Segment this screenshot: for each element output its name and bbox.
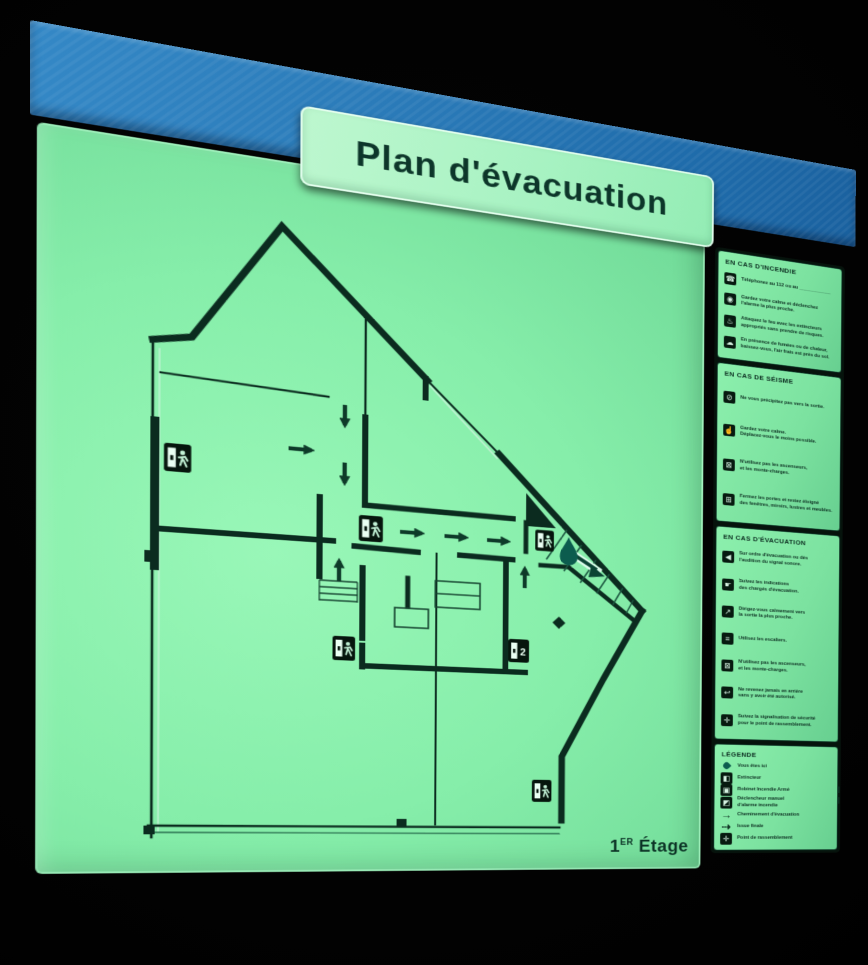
- exit-sign-icon: [532, 780, 552, 802]
- alarm-icon: ◉: [724, 293, 736, 307]
- exit-sign-icon: [332, 636, 355, 661]
- instruction-text: N'utilisez pas les ascenseurs,et les mon…: [738, 659, 805, 675]
- instruction-item: ⊠N'utilisez pas les ascenseurs,et les mo…: [721, 659, 832, 677]
- edge-marks: [837, 787, 840, 804]
- extinguisher-icon: ♨: [724, 314, 736, 327]
- exit-sign-icon: [359, 515, 383, 543]
- direction-icon: ↗: [722, 606, 734, 618]
- instruction-item: ✛Suivez la signalisation de sécuritépour…: [721, 714, 832, 730]
- section-title: LÉGENDE: [722, 751, 832, 761]
- middle-room-south-wall: [362, 666, 525, 673]
- assembly-icon: ✛: [721, 714, 733, 726]
- assembly-point-icon: ✛: [720, 833, 732, 845]
- south-wall-inner-line: [148, 832, 560, 833]
- instruction-item: ↩Ne revenez jamais en arrièresans y avoi…: [721, 686, 832, 703]
- southeast-wall: [561, 606, 642, 821]
- instruction-line: Vous êtes ici: [738, 764, 767, 771]
- instruction-text: Robinet Incendie Armé: [737, 787, 789, 794]
- assembly-point-marker: [552, 616, 565, 629]
- calm-icon: ☝: [723, 424, 735, 437]
- photo-scene: Plan d'évacuation: [0, 0, 868, 965]
- instruction-line: Téléphonez au 112 ou au ____________: [741, 277, 830, 297]
- sidebar-section-seisme: EN CAS DE SÉISME⊘Ne vous précipitez pas …: [716, 362, 842, 532]
- instruction-text: Utilisez les escaliers.: [739, 636, 787, 645]
- sidebar-section-incendie: EN CAS D'INCENDIE☎Téléphonez au 112 ou a…: [717, 250, 842, 374]
- instruction-text: Gardez votre calme et déclenchezl'alarme…: [741, 294, 818, 318]
- left-room-south-wall: [155, 528, 333, 541]
- no-return-icon: ↩: [721, 687, 733, 699]
- floor-number: 1: [610, 837, 621, 856]
- instruction-item: ✛Point de rassemblement: [720, 833, 831, 845]
- instruction-line: Point de rassemblement: [737, 836, 793, 843]
- instruction-text: Attaquez le feu avec les extincteursappr…: [741, 316, 824, 340]
- instruction-item: ⊠N'utilisez pas les ascenseurs,et les mo…: [723, 458, 834, 482]
- smoke-icon: ☁: [724, 336, 736, 349]
- door-marker: [144, 550, 154, 562]
- instruction-text: Point de rassemblement: [737, 836, 793, 843]
- partition-thin: [161, 372, 329, 396]
- floor-plan-panel: 2: [35, 122, 705, 874]
- alarm-trigger-icon: ◩: [720, 797, 732, 809]
- stair-outer-wall: [498, 454, 643, 611]
- evacuation-arrows: [288, 399, 526, 592]
- thin-slope-wall: [427, 381, 499, 454]
- instruction-text: Cheminement d'évacuation: [737, 812, 799, 819]
- instruction-text: Téléphonez au 112 ou au ____________: [741, 277, 830, 297]
- evacuation-sign: Plan d'évacuation: [28, 20, 856, 880]
- south-wall: [148, 826, 560, 828]
- instruction-line: pour le point de rassemblement.: [738, 721, 815, 730]
- instruction-line: Robinet Incendie Armé: [737, 787, 789, 794]
- stairs-icon: ≡: [722, 633, 734, 645]
- stairs-diagonal: [546, 528, 634, 613]
- instruction-item: ≡Utilisez les escaliers.: [722, 633, 833, 650]
- corridor-north-wall: [365, 505, 513, 519]
- door-marker: [143, 826, 154, 835]
- floor-plan: 2: [131, 193, 662, 857]
- no-elevator-icon: ⊠: [721, 659, 733, 671]
- arrow-right: [289, 448, 312, 450]
- instruction-line: Utilisez les escaliers.: [739, 636, 787, 645]
- instruction-text: Suivez la signalisation de sécuritépour …: [738, 714, 816, 729]
- instruction-text: Vous êtes ici: [738, 764, 767, 771]
- corridor-south-wall-a: [355, 546, 418, 552]
- instruction-item: ◩Déclencheur manueld'alarme incendie: [720, 796, 831, 810]
- instruction-text: Issue finale: [737, 824, 763, 831]
- instruction-item: ⊘Ne vous précipitez pas vers la sortie.: [723, 390, 834, 415]
- door-marker: [397, 819, 407, 827]
- instruction-text: Sur ordre d'évacuation ou dèsl'audition …: [739, 551, 808, 569]
- exit-sign-icon: [164, 443, 191, 473]
- no-elevator-icon: ⊠: [723, 458, 735, 471]
- middle-room-east-wall: [505, 563, 506, 671]
- floor-label: 1ER Étage: [610, 837, 689, 857]
- floor-word: Étage: [639, 837, 689, 856]
- exit-sign-b2-icon: [508, 639, 529, 663]
- instruction-line: Issue finale: [737, 824, 763, 831]
- exit-signs: [163, 443, 554, 802]
- arrow-right: [445, 536, 466, 538]
- slope-glow-line: [430, 386, 497, 458]
- you-are-here-icon: [721, 761, 733, 773]
- sidebar-section-legende: LÉGENDEVous êtes ici◧Extincteur▣Robinet …: [713, 744, 838, 851]
- instruction-item: ↗Dirigez-vous calmement versla sortie la…: [722, 605, 833, 625]
- instruction-text: N'utilisez pas les ascenseurs,et les mon…: [740, 459, 808, 479]
- no-run-icon: ⊘: [723, 390, 735, 403]
- instruction-text: En présence de fumées ou de chaleur,bais…: [741, 337, 830, 362]
- instruction-item: →Cheminement d'évacuation: [720, 809, 831, 821]
- instruction-item: ☛Suivez les indicationsdes chargés d'éva…: [722, 578, 833, 598]
- instruction-item: ☝Gardez votre calme.Déplacez-vous le moi…: [723, 423, 834, 448]
- instruction-text: Suivez les indicationsdes chargés d'évac…: [739, 579, 799, 596]
- instruction-line: Extincteur: [737, 775, 761, 782]
- instruction-text: Dirigez-vous calmement versla sortie la …: [739, 606, 805, 623]
- instruction-line: Ne vous précipitez pas vers la sortie.: [740, 395, 824, 411]
- stairs-middle: [319, 580, 357, 603]
- floor-sup: ER: [620, 838, 633, 848]
- instruction-item: ⊞Fermez les portes et restez éloignédes …: [723, 492, 834, 515]
- instruction-text: Ne vous précipitez pas vers la sortie.: [740, 395, 824, 411]
- final-exit-icon: ⇢: [720, 821, 732, 833]
- instruction-text: Déclencheur manueld'alarme incendie: [737, 796, 784, 809]
- ria-icon: ▣: [720, 784, 732, 796]
- instruction-line: sans y avoir été autorisé.: [738, 693, 803, 702]
- signal-icon: ◀: [722, 551, 734, 564]
- route-arrow-icon: →: [720, 809, 732, 821]
- instruction-text: Gardez votre calme.Déplacez-vous le moin…: [740, 425, 816, 446]
- instruction-item: ⇢Issue finale: [720, 821, 831, 833]
- instructions-sidebar: EN CAS D'INCENDIE☎Téléphonez au 112 ou a…: [711, 247, 845, 853]
- arrow-right: [487, 540, 508, 542]
- instruction-text: Ne revenez jamais en arrièresans y avoir…: [738, 687, 803, 702]
- phone-icon: ☎: [724, 272, 736, 286]
- building-outline: [148, 207, 645, 837]
- instruction-text: Extincteur: [737, 775, 761, 782]
- instruction-item: ◀Sur ordre d'évacuation ou dèsl'audition…: [722, 550, 833, 571]
- cabinet-rect: [395, 608, 429, 629]
- guide-icon: ☛: [722, 578, 734, 591]
- door-markers: [143, 550, 407, 835]
- exit-sign-icon: [535, 530, 554, 552]
- windows-icon: ⊞: [723, 493, 735, 506]
- extinguisher-legend-icon: ◧: [721, 773, 733, 785]
- instruction-line: Cheminement d'évacuation: [737, 812, 799, 819]
- arrow-right: [400, 532, 422, 534]
- corridor-south-wall-b: [460, 555, 513, 560]
- gable-wall: [153, 208, 429, 381]
- instruction-text: Fermez les portes et restez éloignédes f…: [740, 494, 833, 515]
- sidebar-section-evacuation: EN CAS D'ÉVACUATION◀Sur ordre d'évacuati…: [714, 525, 840, 742]
